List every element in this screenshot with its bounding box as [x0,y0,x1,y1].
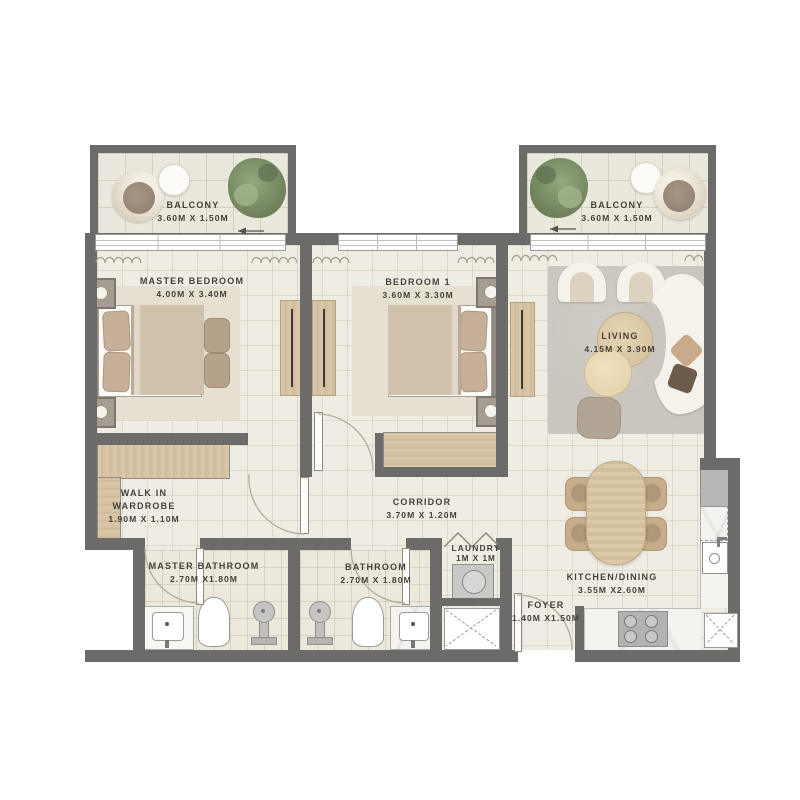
bedroom1-console [383,432,507,469]
room-label-walk-in-wardrobe: WALK IN WARDROBE 1.90M X 1.10M [106,487,182,525]
blanket [131,305,204,395]
kitchen-sink [702,542,728,574]
washing-machine [452,564,494,600]
pillow [459,310,488,351]
burner-icon [624,615,637,628]
shower-dot-icon [261,609,265,613]
burner-icon [645,630,658,643]
bedroom1-bed [388,305,492,397]
balcony-right-wall-w [519,145,527,240]
balcony-right-wall-n [519,145,716,153]
room-label-foyer: FOYER 1.40M X1.50M [512,599,580,624]
room-label-bedroom-1: BEDROOM 1 3.60M X 3.30M [382,276,453,301]
bathroom-shower-head [309,601,331,623]
bedroom1-wardrobe [312,300,336,396]
chair-cushion [663,180,695,212]
master-shower-base [251,637,277,645]
master-bedroom-door [300,477,309,534]
balcony-left-wall-e [288,145,296,240]
wall-right-upper [704,233,716,470]
room-label-corridor: CORRIDOR 3.70M X 1.20M [386,496,457,521]
wall-laundry-bottom [442,598,500,606]
master-bench-pouf-bottom [204,353,230,388]
chair-cushion [123,182,155,214]
faucet-icon [165,640,169,648]
master-bench-pouf-top [204,318,230,353]
kitchen-upper-cabinet-dashed [700,506,728,541]
stove [618,611,668,647]
master-shower-head [253,601,275,623]
blanket [388,305,461,395]
armchair-seat [629,272,653,302]
balcony-right-chair [654,168,706,220]
room-label-kitchen-dining: KITCHEN/DINING 3.55M X2.60M [567,571,658,596]
wall-between-bedrooms [300,245,312,477]
balcony-left-plant [228,158,286,218]
wardrobe-handle-icon [291,309,293,388]
living-pouf [576,396,621,440]
burner-icon [624,630,637,643]
pillow [102,352,130,393]
master-vanity [142,606,194,650]
wall-laundry-right [500,550,512,650]
balcony-left-table [158,164,190,196]
laundry-shaft [444,608,500,650]
faucet-icon-arm [717,537,727,540]
balcony-left-chair [112,170,164,222]
plant-leaf-blob [558,186,582,208]
kitchen-fridge [700,466,730,507]
room-label-balcony-right: BALCONY 3.60M X 1.50M [581,199,652,224]
bedroom1-window [338,234,458,251]
floor-plan: BALCONY 3.60M X 1.50M BALCONY 3.60M X 1.… [0,0,800,800]
burner-icon [645,615,658,628]
faucet-dot-icon [411,622,415,626]
faucet-icon [411,640,415,648]
sink-drain-icon [709,553,720,564]
wall-bottom-left [85,650,518,662]
room-label-balcony-left: BALCONY 3.60M X 1.50M [157,199,228,224]
balcony-right-wall-e [708,145,716,240]
bedroom1-door [314,412,323,471]
room-label-living: LIVING 4.15M X 3.90M [584,330,655,355]
service-shaft [85,550,133,650]
wall-bathroom-divider [288,550,300,650]
wall-master-bottom [85,433,248,445]
pillow [459,352,487,393]
living-media-wardrobe [510,302,535,397]
wall-bath-top-b [200,538,351,550]
room-label-bathroom: BATHROOM 2.70M X 1.80M [340,561,411,586]
washer-drum-icon [462,570,486,594]
pillow [102,310,131,351]
coffee-table-small [584,349,632,397]
plant-leaf-blob [536,166,556,184]
basin-icon [399,612,429,641]
wall-bath-top-a [85,538,145,550]
living-armchair-left [558,262,606,302]
wall-bedroom1-living [496,245,508,477]
wall-laundry-left [430,550,442,650]
master-bed [98,305,202,397]
wall-shaft-right [133,550,145,650]
wall-bedroom1-bottom [375,467,508,477]
kitchen-corner-shaft [704,613,738,648]
wardrobe-shelf-top [97,443,230,479]
plant-leaf-blob [258,164,278,182]
living-balcony-slider [530,234,706,251]
faucet-dot-icon [165,622,169,626]
shower-dot-icon [317,609,321,613]
wardrobe-handle-icon [521,310,523,388]
room-label-master-bedroom: MASTER BEDROOM 4.00M X 3.40M [140,275,244,300]
bathroom-shower-base [307,637,333,645]
plant-leaf-blob [234,184,258,206]
wardrobe-handle-icon [323,309,325,388]
balcony-left-wall-w [90,145,98,240]
wall-bottom-right [575,650,740,662]
balcony-left-wall-n [90,145,296,153]
basin-icon [152,612,184,641]
room-label-laundry: LAUNDRY 1M X 1M [451,543,500,564]
bathroom-toilet [352,597,384,647]
master-balcony-slider [95,234,286,251]
room-label-master-bathroom: MASTER BATHROOM 2.70M X1.80M [149,560,260,585]
dining-table [586,461,646,565]
armchair-seat [570,272,594,302]
wall-bedroom1-spur [375,433,383,467]
wall-bath-top-c [406,538,442,550]
